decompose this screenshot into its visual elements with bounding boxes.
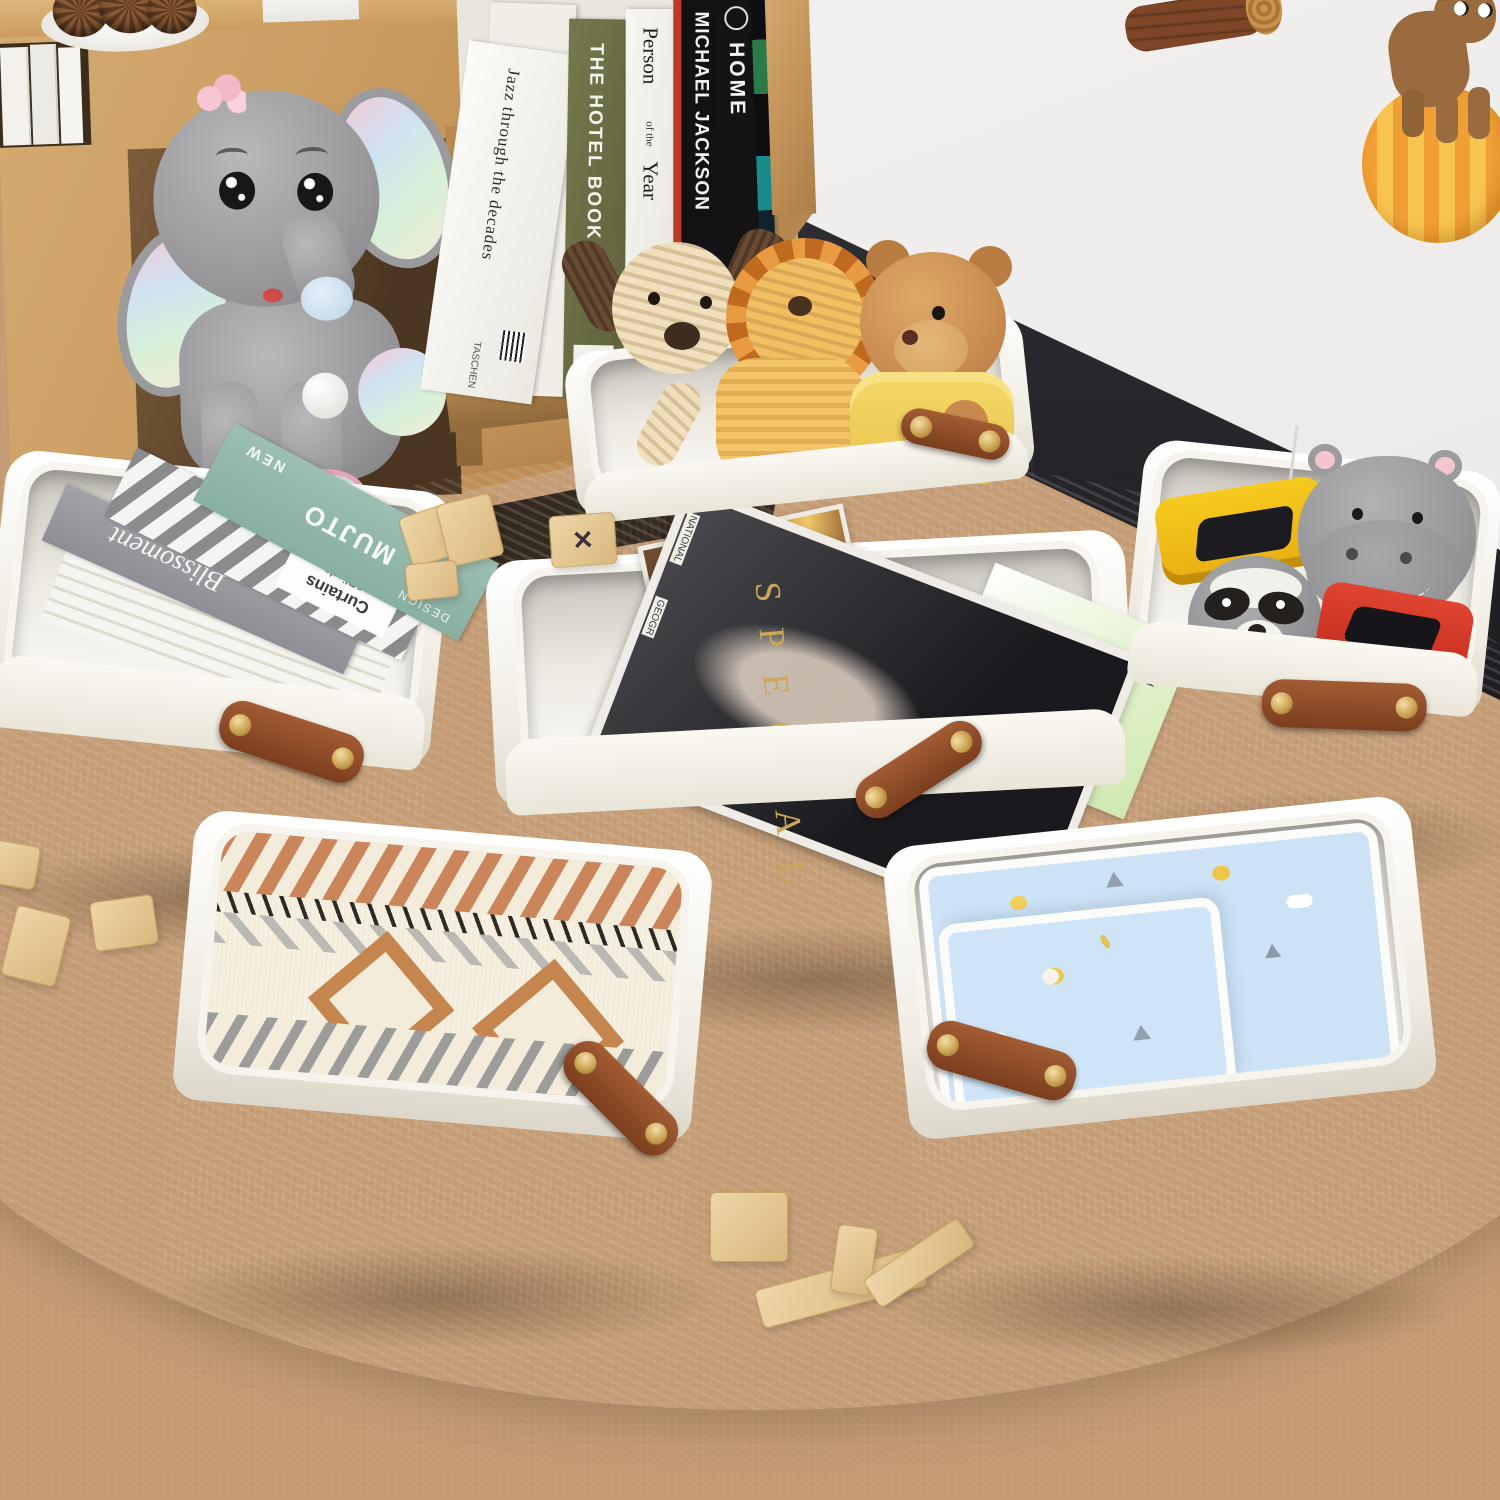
gold-rivet [946, 727, 976, 757]
bear-leg [1468, 87, 1490, 139]
wooden-block-square [89, 894, 159, 952]
book-home-title: HOME [724, 42, 749, 117]
print-teepee [1105, 871, 1124, 888]
gold-rivet [1395, 696, 1418, 719]
wooden-block-flat [404, 559, 460, 601]
playroom-photo: Jazz through the decades TASCHEN THE HOT… [0, 0, 1500, 1500]
print-duck [1041, 967, 1065, 986]
book-home-ornament [724, 6, 748, 30]
basket-front-rim [503, 707, 1127, 816]
bear-leg [1402, 89, 1424, 137]
plush-basket-front-rim [562, 307, 1048, 629]
print-teepee [1132, 1024, 1151, 1041]
book-hotel-title: THE HOTEL BOOK [581, 43, 606, 241]
white-binder [58, 47, 83, 144]
gold-rivet [977, 428, 1003, 454]
book-michael-title: MICHAEL JACKSON [689, 11, 711, 210]
block-x-mark: ✕ [571, 524, 595, 556]
wooden-block-x: ✕ [548, 512, 617, 568]
white-binder [0, 47, 31, 146]
print-chick [1211, 865, 1230, 882]
storage-basket-baby-blanket [881, 794, 1459, 1337]
book-hotel: THE HOTEL BOOK [563, 19, 630, 400]
storage-basket-knit-blanket [156, 808, 715, 1322]
book-person-line2: of the [644, 121, 656, 146]
gold-rivet [908, 414, 934, 440]
book-jazz-barcode [499, 330, 527, 363]
cars-basket-front-rim [1105, 437, 1500, 867]
book-jazz-title: Jazz through the decades [477, 67, 524, 261]
gold-rivet [641, 1118, 672, 1149]
book-person-line3: Year [638, 161, 663, 200]
gold-rivet [570, 1047, 601, 1078]
bear-eye [1454, 1, 1469, 16]
lion-nose [788, 296, 812, 316]
bear-on-ball-wall-sticker [1350, 0, 1500, 245]
gold-rivet [861, 782, 891, 812]
shelf-right-panel [764, 0, 817, 215]
white-storage-box [262, 0, 359, 23]
gold-rivet [1270, 692, 1293, 715]
white-binder [30, 44, 59, 145]
print-teepee [1264, 943, 1281, 959]
dog-eye [648, 292, 660, 305]
gold-rivet [329, 745, 357, 773]
gold-rivet [934, 1032, 961, 1059]
gold-rivet [1042, 1062, 1069, 1089]
print-leaf [1099, 934, 1113, 950]
dog-eye [700, 296, 712, 309]
gold-rivet [226, 711, 254, 739]
bear-leg [1436, 93, 1458, 143]
book-person-line1: Person [638, 27, 663, 84]
bear-eye [1478, 3, 1493, 18]
elephant-flower [193, 73, 246, 115]
book-jazz-publisher: TASCHEN [465, 341, 482, 389]
wooden-block-cube [710, 1192, 788, 1262]
print-chick [1009, 895, 1027, 911]
basket-handle [1261, 679, 1428, 733]
print-cloud [1285, 893, 1312, 909]
